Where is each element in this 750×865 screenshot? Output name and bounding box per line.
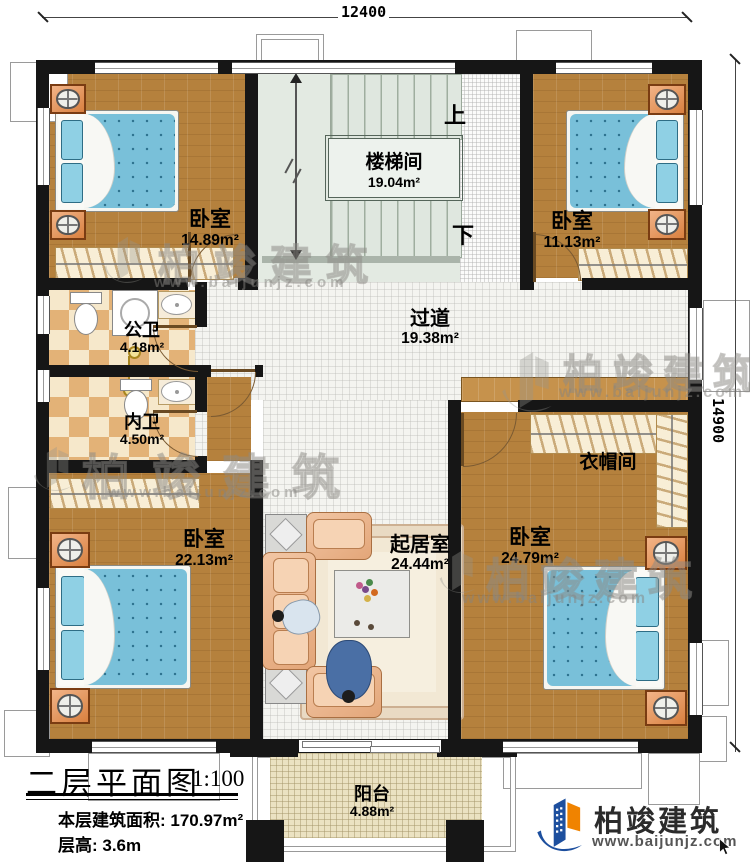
wall xyxy=(245,74,258,282)
wall xyxy=(520,74,533,282)
balcony-column xyxy=(246,820,284,862)
room-name: 卧室 xyxy=(501,526,559,550)
stair-down-label: 下 xyxy=(452,218,474,250)
wall xyxy=(238,278,258,290)
bed-pillow xyxy=(635,631,659,681)
room-area: 14.89m² xyxy=(181,232,239,249)
window xyxy=(689,643,703,715)
room-name: 阳台 xyxy=(350,784,394,804)
nightstand-knob xyxy=(57,694,83,718)
mouse-cursor-icon xyxy=(716,838,734,856)
stair-treads-lower xyxy=(330,200,462,258)
title-underline xyxy=(26,799,238,800)
cloakroom-rack xyxy=(656,414,688,528)
sofa-cushion xyxy=(273,558,309,593)
window xyxy=(92,741,216,753)
room-name: 卧室 xyxy=(544,210,601,234)
room-label-bedroom-bl: 卧室 22.13m² xyxy=(175,528,233,569)
window xyxy=(503,741,638,753)
wall xyxy=(36,460,207,473)
sink xyxy=(161,381,192,402)
room-name: 卧室 xyxy=(175,528,233,552)
stairwell-label-box: 楼梯间 19.04m² xyxy=(328,138,460,198)
room-area: 11.13m² xyxy=(544,234,601,251)
room-label-living-room: 起居室 24.44m² xyxy=(390,534,450,574)
bed-pillow xyxy=(656,163,678,203)
bed-pillow xyxy=(61,120,83,160)
nightstand xyxy=(50,532,90,568)
exterior-ledge xyxy=(698,716,727,762)
exterior-terrace xyxy=(503,753,642,789)
room-label-public-bath: 公卫 4.18m² xyxy=(120,320,164,356)
stair-void xyxy=(460,74,520,282)
wall xyxy=(518,400,688,412)
room-name: 公卫 xyxy=(120,320,164,340)
window xyxy=(37,108,50,185)
corridor-console xyxy=(461,377,690,402)
person-head xyxy=(342,690,355,703)
sliding-door-panel xyxy=(302,741,372,748)
wall xyxy=(36,278,188,290)
sink xyxy=(161,294,192,315)
nightstand-knob xyxy=(653,696,680,720)
nightstand-knob xyxy=(655,214,679,235)
stair-treads-upper xyxy=(330,74,462,140)
bed-pillow xyxy=(61,576,85,626)
room-area: 22.13m² xyxy=(175,552,233,569)
nightstand-knob xyxy=(655,89,679,110)
wall xyxy=(250,460,263,473)
stair-up-label: 上 xyxy=(444,98,466,130)
bed xyxy=(543,566,665,690)
window xyxy=(689,308,703,380)
window xyxy=(232,62,455,74)
room-label-bedroom-tl: 卧室 14.89m² xyxy=(181,208,239,249)
sofa-cushion xyxy=(273,630,309,665)
wall xyxy=(255,365,263,377)
door-leaf xyxy=(461,413,464,466)
bed-pillow xyxy=(656,120,678,160)
bed xyxy=(55,110,179,212)
room-area: 24.79m² xyxy=(501,550,559,567)
sofa-cushion xyxy=(313,519,365,549)
wardrobe xyxy=(578,248,688,281)
bed-pillow xyxy=(61,630,85,680)
wall-pillar xyxy=(230,739,298,757)
balcony-column xyxy=(446,820,484,862)
plan-title: 二层平面图 xyxy=(26,758,201,803)
nightstand xyxy=(645,536,687,570)
nightstand-knob xyxy=(653,541,680,564)
room-area: 4.18m² xyxy=(120,340,164,356)
cloakroom-rack xyxy=(530,414,660,454)
room-area: 4.50m² xyxy=(120,432,164,448)
exterior-ledge xyxy=(703,300,750,392)
room-label-bedroom-tr: 卧室 11.13m² xyxy=(544,210,601,251)
table-cup xyxy=(368,624,374,630)
bed xyxy=(566,110,684,212)
bed-pillow xyxy=(635,577,659,627)
room-label-cloakroom: 衣帽间 xyxy=(579,452,636,473)
window xyxy=(689,110,703,205)
room-label-balcony: 阳台 4.88m² xyxy=(350,784,394,820)
room-area: 24.44m² xyxy=(390,556,450,573)
exterior-ledge xyxy=(701,640,729,706)
nightstand xyxy=(50,84,86,114)
floor-height-text: 层高: 3.6m xyxy=(58,831,141,856)
room-name: 衣帽间 xyxy=(579,452,636,473)
stair-center-line xyxy=(295,80,297,252)
toilet-bowl xyxy=(74,303,98,335)
room-area: 4.88m² xyxy=(350,804,394,820)
right-dimension-value: 14900 xyxy=(706,398,730,443)
room-area: 19.04m² xyxy=(329,174,459,190)
room-name: 起居室 xyxy=(390,534,450,556)
table-cup xyxy=(354,620,360,626)
table-flowers xyxy=(362,586,369,593)
wall xyxy=(195,282,207,327)
nightstand-knob xyxy=(57,538,83,562)
room-name: 过道 xyxy=(401,308,459,330)
stair-arrow-down xyxy=(290,250,302,260)
wall xyxy=(250,473,263,740)
person-head xyxy=(272,610,284,622)
floor-plan: 12400 14900 楼梯间 19.04m² 上 下 xyxy=(0,0,750,865)
right-dimension-line xyxy=(735,60,736,752)
room-name: 内卫 xyxy=(120,412,164,432)
window xyxy=(37,296,50,334)
bed xyxy=(55,565,191,689)
nightstand xyxy=(645,690,687,726)
nightstand-knob xyxy=(56,215,79,236)
nightstand-knob xyxy=(56,89,79,110)
nightstand xyxy=(648,84,686,115)
window xyxy=(37,370,50,402)
door-leaf xyxy=(533,232,536,282)
nightstand xyxy=(50,210,86,240)
plan-scale: 1:100 xyxy=(192,766,244,792)
room-label-bedroom-br: 卧室 24.79m² xyxy=(501,526,559,567)
bed-pillow xyxy=(61,163,83,203)
room-area: 19.38m² xyxy=(401,330,459,347)
window xyxy=(37,588,50,670)
room-label-ensuite-bath: 内卫 4.50m² xyxy=(120,412,164,448)
stair-arrow-up xyxy=(290,73,302,83)
brand-logo-icon xyxy=(533,794,589,856)
window xyxy=(556,62,652,74)
door-leaf xyxy=(211,369,255,372)
nightstand xyxy=(648,209,686,240)
floor-area-text: 本层建筑面积: 170.97m² xyxy=(58,806,243,831)
room-name: 卧室 xyxy=(181,208,239,232)
sofa-single xyxy=(306,512,372,560)
nightstand xyxy=(50,688,90,724)
room-label-corridor: 过道 19.38m² xyxy=(401,308,459,348)
wardrobe xyxy=(50,478,200,509)
title-underline xyxy=(26,793,238,796)
wall xyxy=(520,278,534,290)
window xyxy=(95,62,218,74)
sliding-door-panel xyxy=(370,746,440,753)
wall xyxy=(582,278,688,290)
side-table xyxy=(265,514,307,554)
top-dimension-value: 12400 xyxy=(338,3,389,21)
room-name: 楼梯间 xyxy=(329,147,459,174)
